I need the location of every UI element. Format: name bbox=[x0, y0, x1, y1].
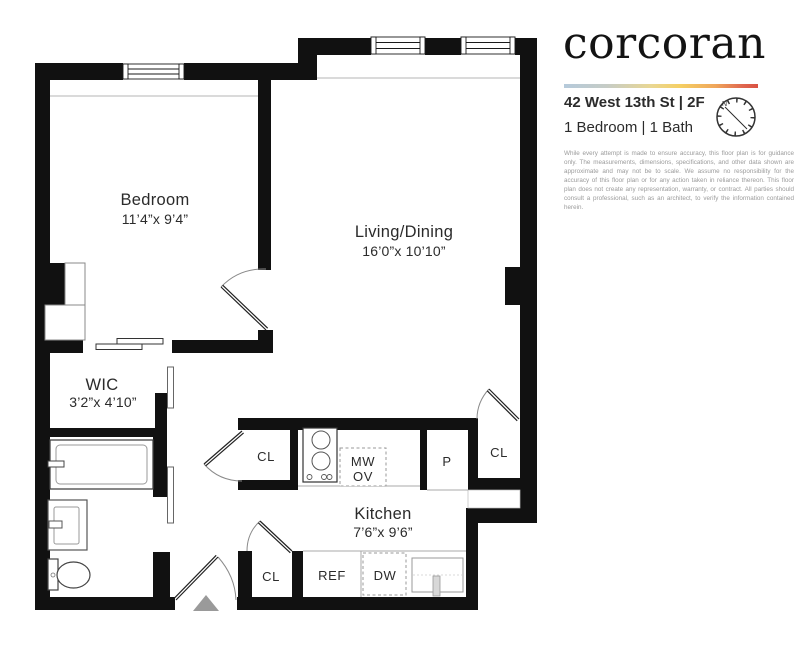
bedroom-closet-icon bbox=[45, 263, 163, 350]
door-icon bbox=[204, 431, 244, 481]
dishwasher-label: DW bbox=[374, 568, 397, 583]
toilet-icon bbox=[48, 559, 90, 590]
brand-gradient-bar bbox=[564, 84, 758, 88]
entry-arrow-icon bbox=[193, 595, 219, 611]
living-dining-dims: 16’0”x 10’10” bbox=[362, 243, 446, 259]
microwave-label: MW bbox=[351, 454, 375, 469]
listing-address: 42 West 13th St | 2F bbox=[564, 94, 705, 111]
walls bbox=[35, 38, 537, 610]
window-icon bbox=[461, 37, 515, 54]
wic-label: WIC bbox=[86, 376, 119, 394]
bathtub-icon bbox=[48, 440, 153, 489]
oven-label: OV bbox=[353, 469, 373, 484]
bedroom-label: Bedroom bbox=[120, 191, 189, 209]
disclaimer-text: While every attempt is made to ensure ac… bbox=[564, 150, 794, 213]
door-icon bbox=[221, 269, 268, 330]
closet-label: CL bbox=[490, 445, 508, 460]
compass-icon: N bbox=[711, 92, 761, 142]
soffit-lines bbox=[50, 78, 520, 96]
door-icon bbox=[168, 467, 174, 523]
wall-niche bbox=[468, 490, 520, 508]
living-dining-label: Living/Dining bbox=[355, 223, 453, 241]
compass-north-label: N bbox=[722, 101, 727, 108]
window-icon bbox=[371, 37, 425, 54]
kitchen-label: Kitchen bbox=[354, 505, 411, 523]
listing-summary: 1 Bedroom | 1 Bath bbox=[564, 119, 693, 136]
door-icon bbox=[168, 367, 174, 408]
door-icon bbox=[247, 521, 292, 553]
kitchen-sink-icon bbox=[412, 558, 463, 596]
cooktop-icon bbox=[303, 428, 337, 482]
brand-logo: corcoran bbox=[563, 18, 795, 71]
pantry-label: P bbox=[442, 454, 451, 469]
closet-label: CL bbox=[257, 449, 275, 464]
door-icon bbox=[477, 389, 519, 421]
kitchen-dims: 7’6”x 9’6” bbox=[353, 524, 413, 540]
floorplan-page: Bedroom 11’4”x 9’4” Living/Dining 16’0”x… bbox=[0, 0, 800, 646]
closet-label: CL bbox=[262, 569, 280, 584]
door-icon bbox=[174, 555, 236, 600]
wic-dims: 3’2”x 4’10” bbox=[69, 394, 137, 410]
floorplan-drawing: Bedroom 11’4”x 9’4” Living/Dining 16’0”x… bbox=[0, 0, 560, 646]
sink-icon bbox=[48, 500, 87, 550]
fridge-label: REF bbox=[318, 568, 346, 583]
bedroom-dims: 11’4”x 9’4” bbox=[122, 211, 189, 227]
window-icon bbox=[123, 64, 184, 79]
